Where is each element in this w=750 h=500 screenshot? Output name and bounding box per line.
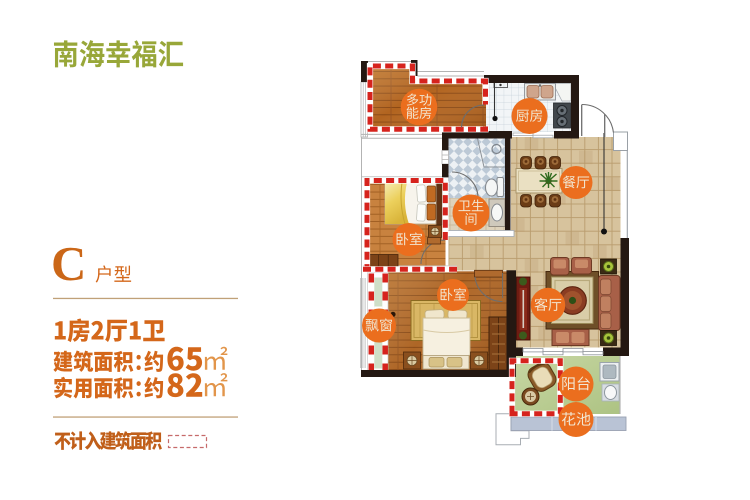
svg-text:C: C xyxy=(51,236,86,291)
